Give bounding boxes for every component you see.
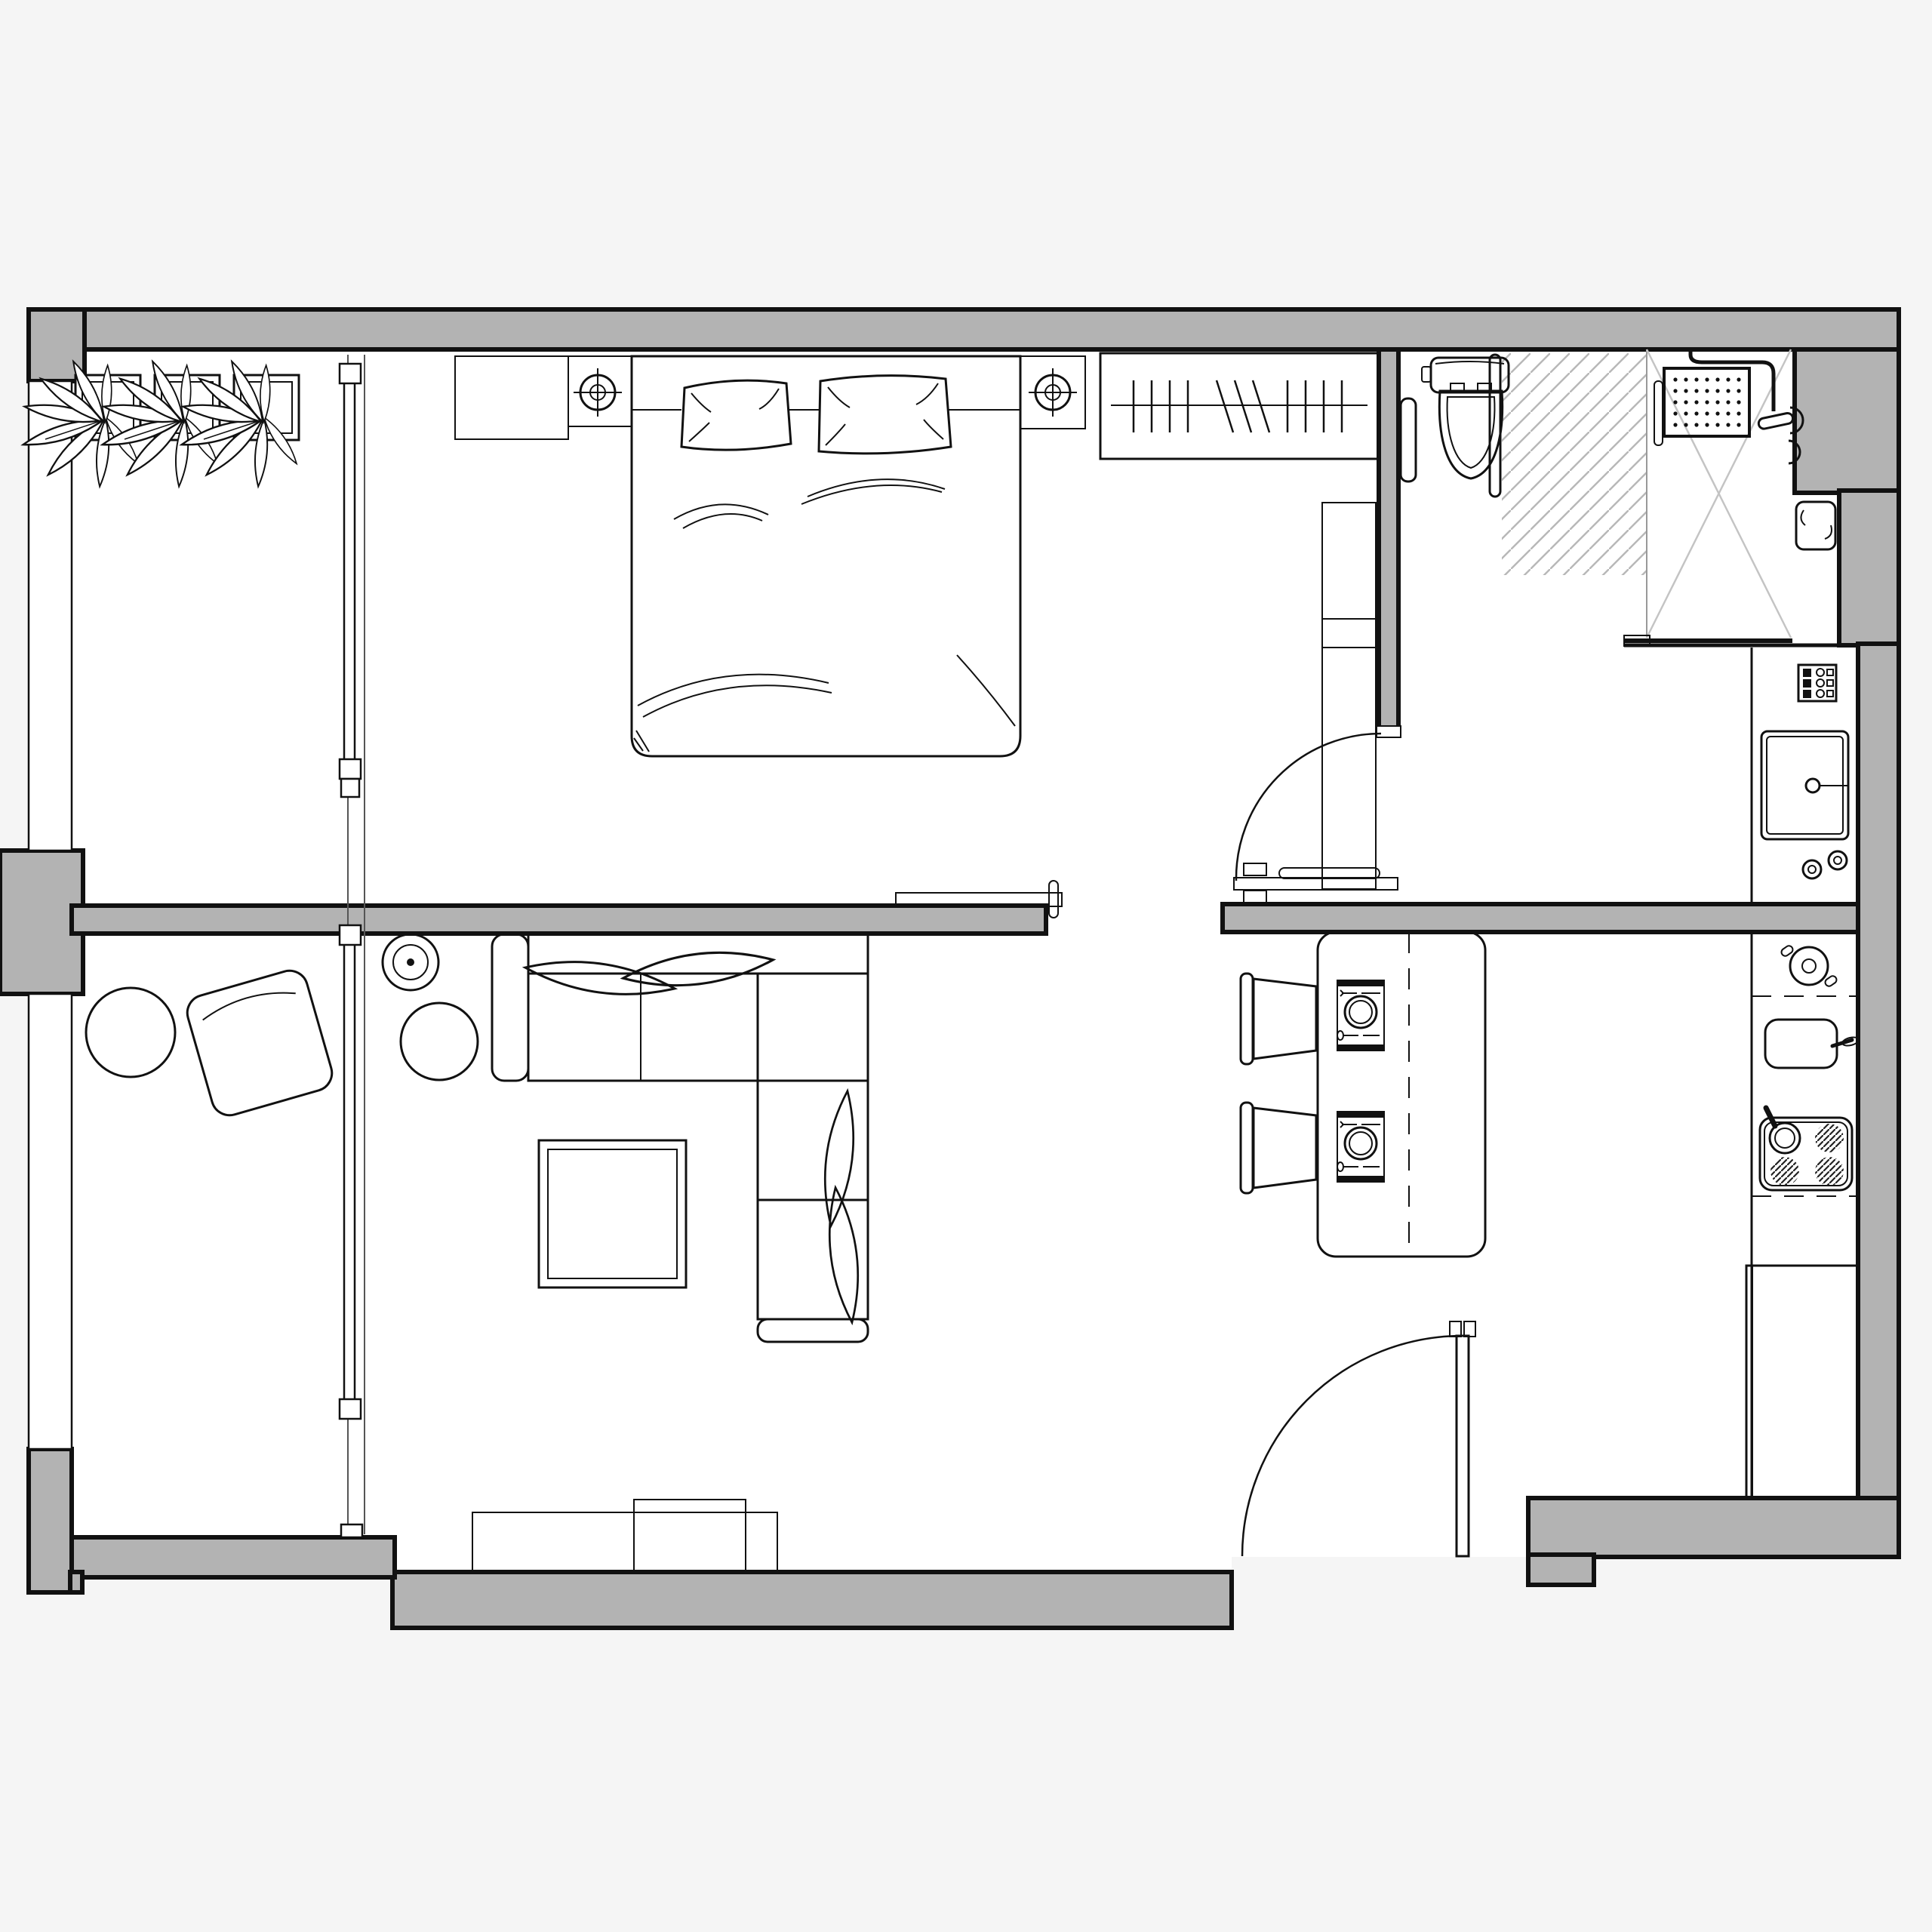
burner	[1815, 1124, 1844, 1152]
burner	[1815, 1157, 1844, 1186]
bathroom-wet-zone-hatch	[1502, 353, 1647, 575]
left-window-lower	[29, 994, 72, 1449]
wall-right-bathroom	[1795, 349, 1899, 493]
wall-bottom-right	[1528, 1498, 1899, 1557]
partition-sliding-panel-upper	[344, 371, 355, 768]
floor-plan	[0, 0, 1932, 1932]
wall-bottom-left-a	[72, 1537, 395, 1577]
bathroom-door-jamb	[1377, 726, 1401, 737]
wall-right	[1858, 644, 1899, 1557]
wall-bedroom-bathroom-divider	[1379, 349, 1398, 729]
wall-bottom-left-b	[392, 1572, 1232, 1628]
wall-middle-left	[72, 906, 1046, 934]
wall-bottom-left-corner	[29, 1449, 72, 1592]
partition-sliding-panel-lower	[344, 936, 355, 1410]
wall-top	[29, 309, 1899, 349]
wall-bottom-left-foot	[70, 1572, 82, 1592]
burner	[1770, 1157, 1799, 1186]
wall-middle-right	[1223, 904, 1858, 932]
wall-right-niche	[1839, 491, 1899, 645]
wall-bottom-right-step	[1528, 1555, 1594, 1585]
